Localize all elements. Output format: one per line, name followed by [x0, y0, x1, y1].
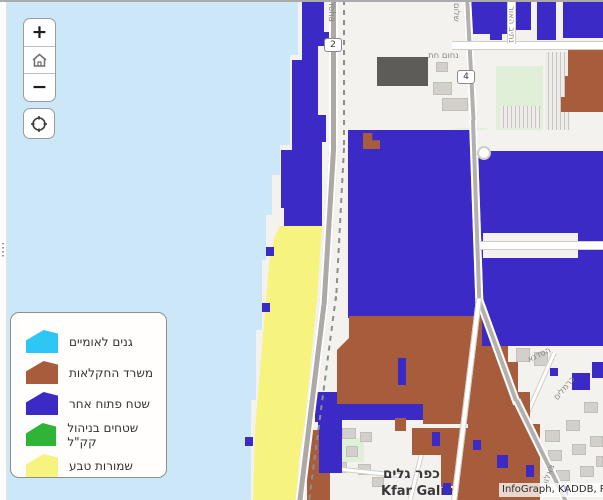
building [572, 444, 586, 455]
legend-label: שטחים בניהול קק"ל [67, 421, 166, 449]
building [342, 428, 356, 439]
building [580, 466, 594, 477]
highway-2-road [329, 0, 338, 154]
map-overlay-open-space [497, 455, 508, 468]
home-icon [31, 53, 48, 68]
building [545, 430, 560, 442]
building [596, 456, 603, 467]
legend-label: שטח פתוח אחר [69, 397, 150, 411]
building [346, 446, 358, 457]
legend-item-national-parks: גנים לאומיים [11, 326, 166, 357]
map-overlay-open-space [266, 247, 274, 256]
map-overlay-open-space [473, 440, 481, 450]
legend-swatch-green [26, 423, 56, 446]
building [377, 57, 428, 86]
zoom-in-button[interactable]: + [24, 19, 55, 46]
map-app-window: כפר גלים Kfar Galim [0, 0, 603, 500]
home-button[interactable] [24, 46, 55, 74]
map-overlay-open-space [563, 0, 603, 38]
legend-label: משרד החקלאות [69, 366, 153, 380]
legend-swatch-cyan [26, 330, 58, 353]
legend-item-agriculture: משרד החקלאות [11, 357, 166, 388]
place-label-hebrew: כפר גלים [383, 466, 440, 482]
map-overlay-open-space [443, 483, 451, 495]
map-overlay-open-space [490, 32, 502, 40]
route-shield-2: 2 [324, 38, 342, 52]
legend-label: שמורות טבע [69, 459, 133, 473]
map-overlay-agriculture [318, 473, 330, 500]
map-overlay-open-space [515, 2, 531, 30]
locate-icon [30, 115, 48, 133]
map-overlay-agriculture [395, 418, 406, 431]
roundabout [477, 146, 491, 160]
route-number: 4 [463, 72, 469, 82]
map-overlay-open-space [262, 303, 270, 312]
street-label-nahum-het: נחום חת [428, 51, 459, 61]
legend-swatch-blue [26, 392, 58, 415]
zoom-out-button[interactable]: − [24, 73, 55, 101]
map-overlay-open-space [245, 437, 253, 446]
building [433, 82, 452, 95]
top-border [0, 0, 603, 2]
map-overlay-open-space [398, 358, 406, 385]
legend-panel: גנים לאומיים משרד החקלאות שטח פתוח אחר ש… [10, 312, 167, 478]
map-overlay-open-space [318, 420, 342, 473]
map-overlay-open-space [592, 362, 603, 378]
legend-item-open-space: שטח פתוח אחר [11, 388, 166, 419]
zoom-control-group: + − [23, 18, 56, 102]
splitter-handle[interactable] [2, 243, 4, 259]
land-gap [472, 130, 603, 151]
route-number: 2 [330, 40, 336, 50]
map-overlay-open-space [550, 368, 558, 376]
map-attribution: InfoGraph, KADDB, RJ [499, 483, 603, 497]
parking-structure [500, 106, 540, 128]
street-label-shalom: שלום [451, 3, 461, 22]
locate-button[interactable] [23, 108, 55, 139]
map-overlay-open-space [526, 465, 534, 477]
map-overlay-open-space [336, 404, 432, 420]
building [436, 62, 448, 72]
building [442, 98, 468, 111]
legend-label: גנים לאומיים [69, 335, 133, 349]
legend-item-nature-reserves: שמורות טבע [11, 450, 166, 481]
map-overlay-open-space [432, 432, 440, 446]
street-label-yoha: Yoha [326, 2, 336, 22]
map-overlay-open-space [482, 318, 603, 346]
map-overlay-open-space [537, 0, 556, 40]
map-overlay-open-space [468, 2, 507, 34]
building [584, 402, 598, 413]
route-shield-4: 4 [457, 70, 475, 84]
railway-line [343, 0, 345, 150]
legend-swatch-brown [26, 361, 58, 384]
street-label-netiv-haor: נתיב האור [506, 6, 516, 43]
building [360, 432, 372, 442]
building [590, 436, 603, 447]
nahum-het-road [452, 41, 603, 50]
legend-swatch-yellow [26, 454, 58, 477]
building [566, 420, 580, 431]
cross-road [480, 241, 603, 250]
legend-item-kkl-managed: שטחים בניהול קק"ל [11, 419, 166, 450]
